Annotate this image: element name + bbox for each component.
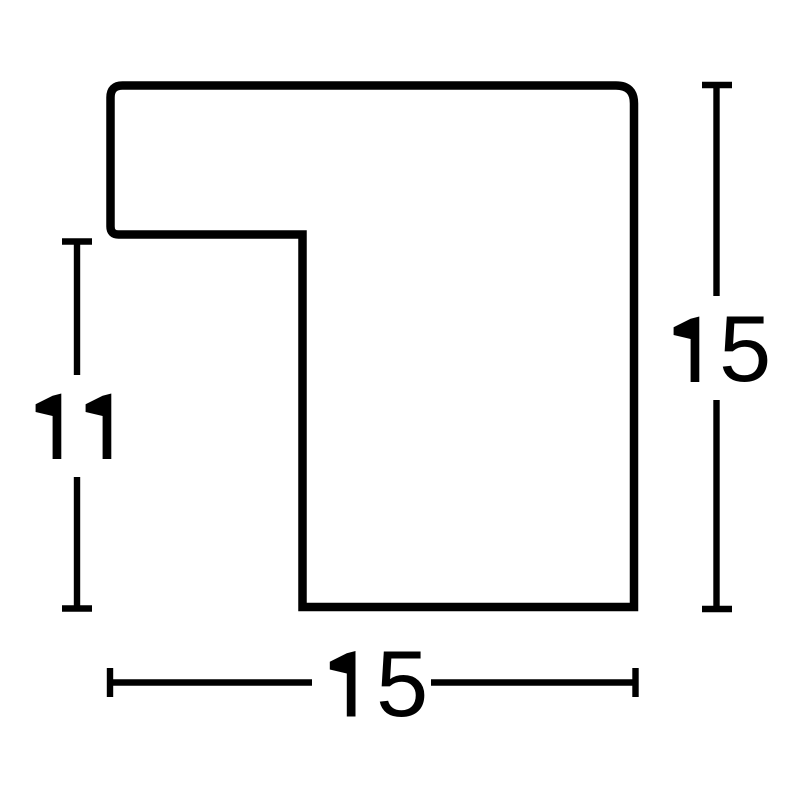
- svg-text:5: 5: [719, 296, 771, 401]
- svg-text:5: 5: [376, 631, 428, 736]
